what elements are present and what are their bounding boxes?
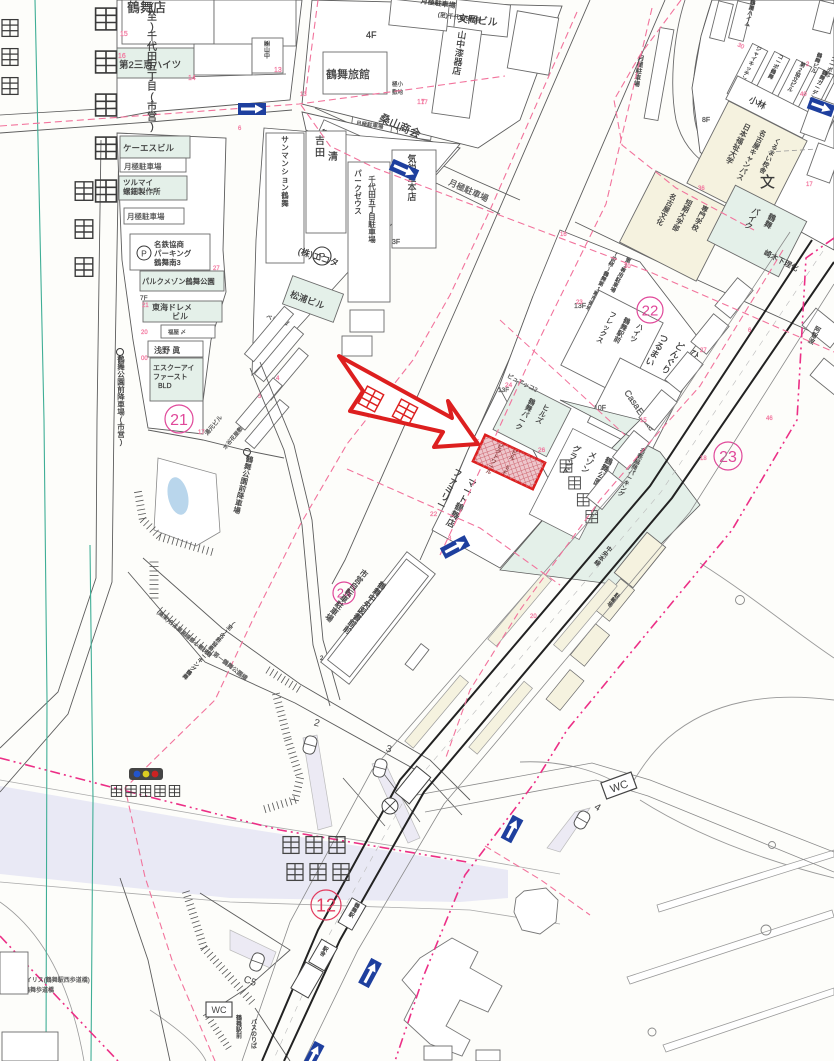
svg-text:22: 22 <box>642 302 659 319</box>
svg-text:敷地: 敷地 <box>392 88 404 96</box>
svg-text:46: 46 <box>766 416 773 422</box>
svg-text:WC: WC <box>212 1005 227 1015</box>
svg-text:17: 17 <box>421 100 428 106</box>
svg-text:月極駐車場: 月極駐車場 <box>127 211 165 221</box>
svg-text:4F: 4F <box>366 30 377 40</box>
svg-text:00: 00 <box>141 356 148 362</box>
svg-text:鶴舞歩道橋: 鶴舞歩道橋 <box>24 986 54 994</box>
svg-text:鶴舞公園前降車場(市営): 鶴舞公園前降車場(市営) <box>117 354 125 447</box>
svg-text:27: 27 <box>213 266 220 272</box>
svg-text:清: 清 <box>328 150 338 163</box>
svg-text:15: 15 <box>640 418 647 424</box>
svg-text:ビル: ビル <box>172 312 188 321</box>
svg-text:ファースト: ファースト <box>153 373 188 381</box>
svg-text:30: 30 <box>624 264 631 270</box>
svg-text:文: 文 <box>760 174 775 191</box>
svg-text:20: 20 <box>141 330 148 336</box>
svg-text:サンマンション鶴舞: サンマンション鶴舞 <box>281 135 289 208</box>
svg-text:40: 40 <box>800 92 807 98</box>
svg-text:17: 17 <box>198 430 205 436</box>
svg-text:17: 17 <box>806 182 813 188</box>
svg-text:鶴舞駅前: 鶴舞駅前 <box>236 1014 242 1040</box>
svg-text:18: 18 <box>700 456 707 462</box>
svg-text:浅野 眞: 浅野 眞 <box>154 345 180 355</box>
svg-text:ツルマイ: ツルマイ <box>123 178 153 187</box>
svg-text:21: 21 <box>170 412 188 429</box>
svg-text:P: P <box>141 249 147 259</box>
svg-text:24: 24 <box>505 382 513 389</box>
svg-text:ケーエスビル: ケーエスビル <box>123 143 175 153</box>
svg-text:㈱山中: ㈱山中 <box>264 40 270 60</box>
svg-text:エスクーアイ: エスクーアイ <box>153 364 194 372</box>
svg-text:千代田五丁目駐車場: 千代田五丁目駐車場 <box>368 174 376 244</box>
svg-text:16: 16 <box>118 53 126 60</box>
svg-text:15: 15 <box>120 31 128 38</box>
svg-text:福屋 〆: 福屋 〆 <box>168 328 186 336</box>
svg-text:22: 22 <box>430 511 438 518</box>
svg-text:パーキング: パーキング <box>154 248 192 258</box>
svg-text:月極駐車場: 月極駐車場 <box>124 161 162 171</box>
svg-text:極小: 極小 <box>392 80 404 88</box>
svg-text:16: 16 <box>560 232 567 238</box>
svg-text:27: 27 <box>700 348 707 354</box>
svg-text:名鉄協商: 名鉄協商 <box>154 239 184 249</box>
svg-text:36: 36 <box>698 186 705 192</box>
svg-text:26: 26 <box>538 447 546 454</box>
svg-text:13: 13 <box>274 67 282 74</box>
svg-text:アイリス(鶴舞駅西歩道橋): アイリス(鶴舞駅西歩道橋) <box>20 976 90 984</box>
svg-text:3F: 3F <box>392 239 400 246</box>
svg-text:BLD: BLD <box>158 383 172 390</box>
svg-text:8F: 8F <box>702 117 710 124</box>
svg-text:鶴舞旅館: 鶴舞旅館 <box>326 67 370 81</box>
svg-text:13: 13 <box>300 92 307 98</box>
svg-text:バスのりば: バスのりば <box>251 1019 257 1050</box>
svg-text:東海ドレメ: 東海ドレメ <box>152 302 192 312</box>
svg-text:螺鈿製作所: 螺鈿製作所 <box>123 186 161 196</box>
svg-text:21: 21 <box>142 303 149 309</box>
svg-text:パルクメゾン鶴舞公園: パルクメゾン鶴舞公園 <box>142 277 215 286</box>
svg-text:20: 20 <box>530 614 537 620</box>
svg-text:パークゼウス: パークゼウス <box>354 169 362 216</box>
svg-text:23: 23 <box>576 300 583 306</box>
svg-text:(至)千代田五丁目(市営): (至)千代田五丁目(市営) <box>147 2 157 133</box>
svg-text:12: 12 <box>316 895 336 915</box>
svg-text:鶴舞南3: 鶴舞南3 <box>154 257 181 267</box>
svg-text:14: 14 <box>188 75 196 82</box>
